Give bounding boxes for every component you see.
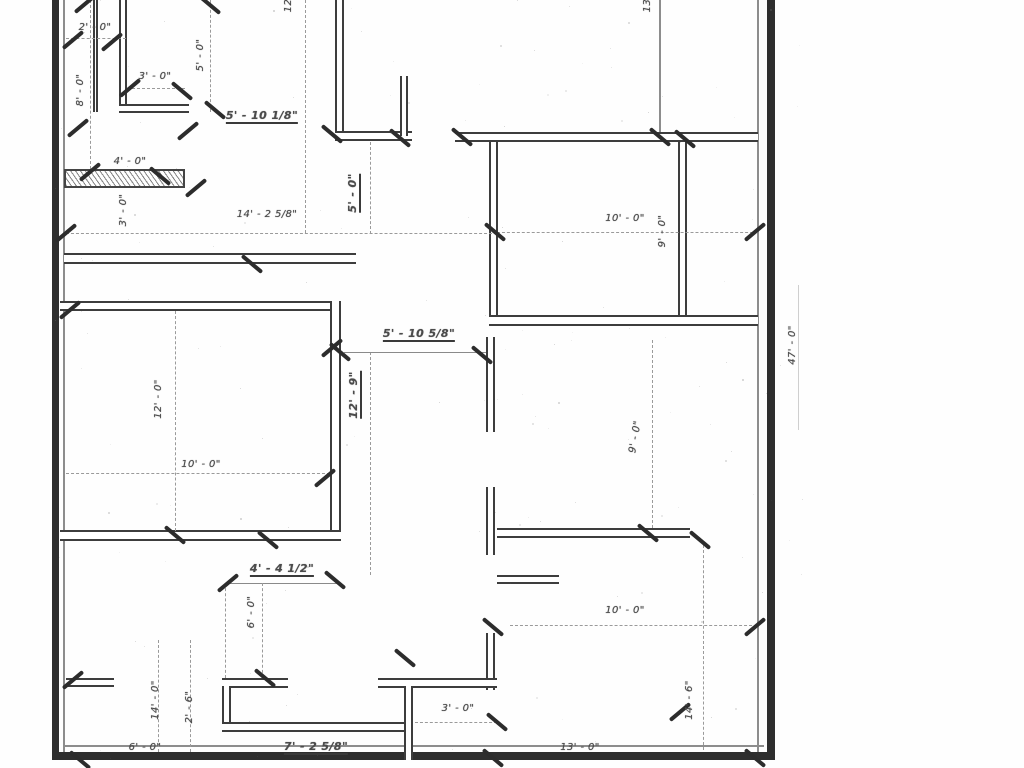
noise-speck	[220, 346, 221, 347]
wall-segment	[335, 0, 344, 141]
dimension-label: 13' - 0"	[560, 743, 600, 753]
dashed-reference-line	[262, 583, 263, 678]
noise-speck	[770, 9, 772, 11]
noise-speck	[621, 120, 623, 122]
noise-speck	[575, 502, 576, 503]
noise-speck	[582, 63, 583, 64]
noise-speck	[426, 300, 427, 301]
noise-speck	[156, 503, 158, 505]
dimension-label: 6' - 0"	[247, 596, 257, 629]
noise-speck	[628, 22, 630, 24]
noise-speck	[361, 31, 362, 32]
wall-segment	[64, 745, 764, 747]
noise-speck	[164, 21, 165, 22]
noise-speck	[285, 590, 286, 591]
noise-speck	[207, 678, 208, 679]
noise-speck	[262, 438, 263, 439]
floor-plan-canvas: 12'13'2' - 0"8' - 0"3' - 0"5' - 0"5' - 1…	[0, 0, 1024, 768]
noise-speck	[408, 102, 410, 104]
dimension-label: 9' - 0"	[658, 215, 668, 248]
noise-speck	[502, 227, 503, 228]
noise-speck	[528, 517, 529, 518]
noise-speck	[648, 112, 649, 113]
wall-segment	[757, 0, 759, 760]
noise-speck	[505, 268, 506, 269]
dashed-reference-line	[370, 352, 371, 575]
dimension-tick-mark	[204, 100, 226, 120]
noise-speck	[753, 189, 754, 190]
wall-segment	[486, 337, 495, 432]
noise-speck	[755, 658, 756, 659]
wall-segment	[767, 0, 775, 760]
noise-speck	[661, 515, 663, 517]
noise-speck	[665, 337, 666, 338]
noise-speck	[119, 552, 120, 553]
noise-speck	[110, 758, 111, 759]
noise-speck	[641, 592, 643, 594]
noise-speck	[534, 50, 535, 51]
noise-speck	[170, 505, 171, 506]
noise-speck	[595, 741, 596, 742]
noise-speck	[716, 87, 717, 88]
dimension-label: 9' - 0"	[628, 420, 644, 454]
noise-speck	[617, 596, 618, 597]
noise-speck	[771, 500, 772, 501]
dimension-tick-mark	[177, 121, 199, 141]
noise-speck	[517, 0, 518, 1]
noise-speck	[87, 333, 88, 334]
noise-speck	[240, 518, 242, 520]
noise-speck	[132, 81, 133, 82]
dimension-label: 4' - 0"	[114, 157, 147, 167]
dimension-label: 5' - 0"	[196, 39, 206, 72]
noise-speck	[249, 721, 250, 722]
noise-speck	[198, 348, 199, 349]
noise-speck	[569, 6, 570, 7]
noise-speck	[139, 242, 140, 243]
noise-speck	[562, 241, 563, 242]
wall-segment	[378, 678, 497, 688]
dimension-label: 12'	[284, 0, 294, 12]
dimension-label: 10' - 0"	[605, 606, 645, 616]
noise-speck	[802, 499, 803, 500]
dashed-reference-line	[497, 232, 758, 233]
noise-speck	[710, 424, 711, 425]
dimension-tick-mark	[744, 617, 766, 637]
wall-segment	[60, 301, 341, 311]
noise-speck	[468, 217, 469, 218]
noise-speck	[484, 400, 485, 401]
noise-speck	[297, 694, 298, 695]
wall-segment	[52, 0, 59, 760]
dashed-reference-line	[66, 233, 497, 234]
noise-speck	[306, 282, 307, 283]
noise-speck	[135, 641, 136, 642]
noise-speck	[288, 527, 289, 528]
dimension-line	[344, 352, 486, 353]
dimension-label: 3' - 0"	[119, 194, 129, 227]
noise-speck	[174, 455, 175, 456]
noise-speck	[273, 10, 275, 12]
dimension-line	[798, 285, 799, 430]
noise-speck	[108, 512, 110, 514]
noise-speck	[346, 444, 348, 446]
noise-speck	[213, 246, 214, 247]
noise-speck	[497, 399, 498, 400]
dimension-label: 7' - 2 5/8"	[284, 741, 348, 755]
noise-speck	[670, 412, 671, 413]
noise-speck	[547, 94, 549, 96]
dashed-reference-line	[210, 0, 211, 112]
dimension-label: 12' - 9"	[348, 371, 362, 419]
noise-speck	[505, 349, 506, 350]
noise-speck	[558, 402, 560, 404]
noise-speck	[293, 97, 294, 98]
dashed-reference-line	[305, 0, 306, 233]
noise-speck	[81, 311, 82, 312]
noise-speck	[479, 531, 480, 532]
wall-segment	[52, 752, 775, 760]
noise-speck	[92, 260, 93, 261]
wall-segment	[222, 722, 413, 732]
noise-speck	[110, 444, 111, 445]
noise-speck	[797, 106, 798, 107]
dashed-reference-line	[66, 473, 330, 474]
noise-speck	[540, 521, 541, 522]
noise-speck	[317, 755, 318, 756]
noise-speck	[701, 621, 703, 623]
noise-speck	[799, 45, 800, 46]
noise-speck	[789, 540, 790, 541]
noise-speck	[240, 388, 241, 389]
noise-speck	[500, 45, 502, 47]
noise-speck	[762, 592, 763, 593]
dimension-label: 10' - 0"	[605, 214, 645, 224]
noise-speck	[59, 557, 60, 558]
dimension-tick-mark	[171, 81, 193, 101]
noise-speck	[351, 8, 352, 9]
noise-speck	[485, 315, 486, 316]
dimension-label: 14' - 2 5/8"	[237, 210, 297, 220]
noise-speck	[519, 524, 521, 526]
noise-speck	[780, 365, 781, 366]
noise-speck	[128, 299, 129, 300]
noise-speck	[548, 428, 549, 429]
dimension-label: 5' - 10 5/8"	[383, 328, 455, 342]
dimension-label: 47' - 0"	[788, 325, 798, 365]
noise-speck	[562, 719, 563, 720]
dashed-reference-line	[652, 340, 653, 528]
noise-speck	[522, 394, 523, 395]
wall-segment	[455, 132, 758, 142]
dimension-tick-mark	[324, 570, 346, 590]
wall-segment	[497, 575, 559, 584]
noise-speck	[354, 436, 355, 437]
noise-speck	[128, 66, 129, 67]
dimension-label: 13'	[643, 0, 653, 12]
wall-segment	[489, 315, 758, 326]
dashed-reference-line	[225, 583, 226, 678]
noise-speck	[340, 380, 341, 381]
noise-speck	[266, 603, 267, 604]
dimension-tick-mark	[67, 118, 89, 138]
noise-speck	[510, 583, 511, 584]
noise-speck	[522, 330, 523, 331]
dimension-label: 4' - 4 1/2"	[250, 563, 314, 577]
dashed-reference-line	[510, 625, 757, 626]
noise-speck	[81, 368, 82, 369]
noise-speck	[535, 416, 536, 417]
wall-segment	[119, 104, 189, 113]
noise-speck	[250, 673, 251, 674]
noise-speck	[286, 705, 287, 706]
noise-speck	[307, 566, 309, 568]
wall-segment	[497, 528, 690, 538]
noise-speck	[390, 132, 392, 134]
noise-speck	[320, 210, 321, 211]
noise-speck	[678, 507, 679, 508]
noise-speck	[495, 512, 496, 513]
dimension-label: 8' - 0"	[76, 74, 86, 107]
dimension-label: 12' - 0"	[154, 379, 164, 419]
noise-speck	[189, 187, 190, 188]
noise-speck	[341, 228, 342, 229]
wall-segment	[659, 0, 661, 132]
dashed-reference-line	[415, 722, 497, 723]
noise-speck	[100, 0, 101, 1]
wall-segment	[93, 0, 98, 112]
noise-speck	[801, 574, 802, 575]
noise-speck	[127, 166, 128, 167]
noise-speck	[165, 561, 166, 562]
noise-speck	[176, 168, 177, 169]
dimension-label: 5' - 10 1/8"	[226, 110, 298, 124]
noise-speck	[603, 307, 604, 308]
noise-speck	[140, 122, 141, 123]
wall-segment	[330, 301, 341, 541]
dimension-label: 10' - 0"	[181, 460, 221, 470]
noise-speck	[532, 423, 534, 425]
noise-speck	[73, 37, 74, 38]
noise-speck	[724, 281, 725, 282]
dimension-line	[228, 583, 338, 584]
noise-speck	[680, 142, 681, 143]
dimension-tick-mark	[394, 648, 416, 668]
dimension-label: 14' - 0"	[151, 680, 161, 720]
noise-speck	[84, 32, 85, 33]
noise-speck	[61, 128, 62, 129]
dimension-label: 3' - 0"	[442, 704, 475, 714]
noise-speck	[471, 708, 472, 709]
floor-plan-page: 12'13'2' - 0"8' - 0"3' - 0"5' - 0"5' - 1…	[0, 0, 1024, 768]
noise-speck	[134, 214, 136, 216]
noise-speck	[735, 708, 737, 710]
noise-speck	[55, 320, 56, 321]
noise-speck	[244, 222, 246, 224]
noise-speck	[731, 451, 732, 452]
noise-speck	[100, 750, 101, 751]
noise-speck	[628, 439, 629, 440]
wall-segment	[400, 76, 408, 136]
noise-speck	[766, 393, 767, 394]
noise-speck	[144, 646, 145, 647]
dimension-tick-mark	[62, 30, 84, 50]
wall-segment	[63, 0, 65, 760]
noise-speck	[742, 557, 743, 558]
noise-speck	[55, 188, 56, 189]
noise-speck	[711, 717, 712, 718]
wall-segment	[404, 686, 413, 760]
noise-speck	[452, 749, 453, 750]
noise-speck	[752, 219, 753, 220]
noise-speck	[699, 386, 700, 387]
noise-speck	[439, 402, 440, 403]
dimension-label: 6' - 0"	[129, 743, 162, 753]
noise-speck	[610, 48, 611, 49]
noise-speck	[725, 460, 727, 462]
noise-speck	[504, 126, 505, 127]
noise-speck	[393, 61, 394, 62]
noise-speck	[662, 96, 663, 97]
noise-speck	[734, 117, 735, 118]
wall-segment	[60, 530, 341, 541]
noise-speck	[629, 328, 630, 329]
noise-speck	[465, 120, 466, 121]
noise-speck	[565, 90, 567, 92]
dashed-reference-line	[175, 311, 176, 531]
dimension-tick-mark	[689, 530, 711, 550]
dashed-reference-line	[370, 142, 371, 234]
noise-speck	[611, 67, 612, 68]
wall-segment	[64, 253, 356, 264]
dimension-label: 3' - 0"	[139, 72, 172, 82]
noise-speck	[726, 362, 727, 363]
noise-speck	[571, 340, 572, 341]
wall-segment	[222, 678, 288, 688]
noise-speck	[257, 756, 258, 757]
wall-segment	[486, 487, 495, 555]
dimension-tick-mark	[185, 178, 207, 198]
noise-speck	[81, 258, 82, 259]
noise-speck	[753, 494, 754, 495]
noise-speck	[390, 95, 391, 96]
noise-speck	[572, 332, 573, 333]
dashed-reference-line	[703, 545, 704, 750]
dimension-label: 5' - 0"	[347, 173, 361, 212]
noise-speck	[742, 379, 744, 381]
noise-speck	[252, 637, 254, 639]
noise-speck	[479, 84, 480, 85]
dimension-label: 2' - 6"	[185, 691, 195, 724]
dimension-label: 14' - 6"	[685, 680, 695, 720]
noise-speck	[536, 697, 538, 699]
noise-speck	[554, 344, 555, 345]
